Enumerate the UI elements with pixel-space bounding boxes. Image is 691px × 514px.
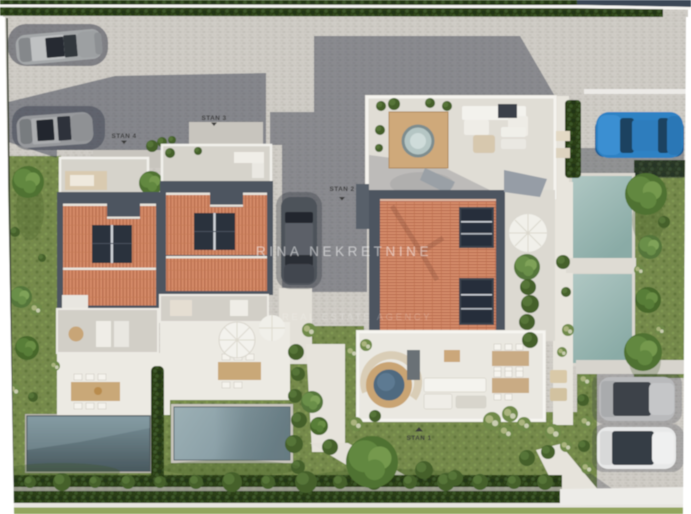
svg-text:STAN 2: STAN 2	[329, 186, 354, 193]
svg-text:RINA NEKRETNINE: RINA NEKRETNINE	[256, 244, 432, 259]
svg-text:STAN 4: STAN 4	[111, 133, 136, 140]
svg-text:STAN 1: STAN 1	[406, 435, 431, 442]
svg-text:STAN 3: STAN 3	[201, 115, 226, 122]
svg-text:REAL ESTATE AGENCY: REAL ESTATE AGENCY	[282, 312, 432, 323]
